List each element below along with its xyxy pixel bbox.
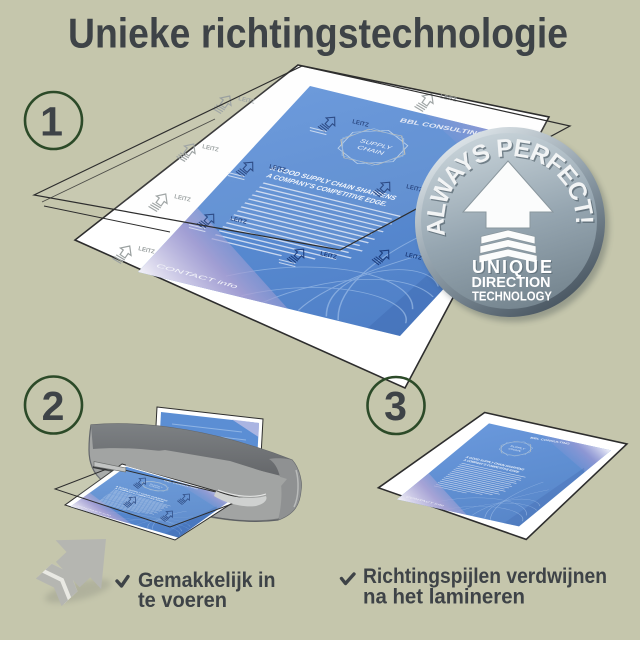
svg-text:Unieke richtingstechnologie: Unieke richtingstechnologie (68, 10, 568, 57)
svg-text:1: 1 (40, 99, 63, 145)
svg-text:2: 2 (42, 383, 65, 429)
svg-text:UNIQUE: UNIQUE (472, 257, 552, 277)
svg-text:te voeren: te voeren (138, 589, 227, 612)
svg-text:TECHNOLOGY: TECHNOLOGY (472, 289, 552, 304)
svg-text:na het lamineren: na het lamineren (363, 586, 525, 609)
svg-text:3: 3 (384, 383, 407, 429)
